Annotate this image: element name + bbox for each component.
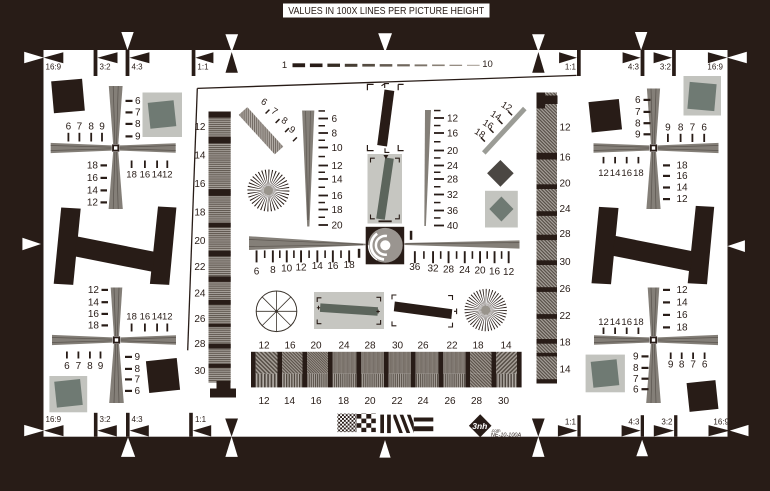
svg-text:18: 18 [126,170,137,181]
svg-text:NE-10-100A: NE-10-100A [491,432,522,438]
svg-text:14: 14 [332,175,344,186]
svg-text:12: 12 [677,285,689,296]
svg-text:16: 16 [284,341,296,352]
svg-text:14: 14 [194,151,206,162]
svg-text:3:2: 3:2 [660,63,672,72]
svg-text:4:3: 4:3 [132,63,144,72]
svg-text:9: 9 [668,360,674,371]
svg-text:8: 8 [135,364,141,375]
svg-text:4:3: 4:3 [132,415,144,424]
svg-text:10: 10 [482,59,493,70]
svg-text:18: 18 [87,161,99,172]
svg-text:28: 28 [471,396,483,407]
svg-text:VALUES IN 100X LINES PER PICTU: VALUES IN 100X LINES PER PICTURE HEIGHT [288,5,484,17]
svg-text:16: 16 [194,179,206,190]
svg-text:16: 16 [621,317,632,328]
svg-text:1:1: 1:1 [565,417,577,426]
svg-text:22: 22 [391,396,403,407]
svg-text:36: 36 [409,262,421,273]
svg-text:3:2: 3:2 [661,417,673,426]
svg-text:3:2: 3:2 [100,415,112,424]
svg-text:16: 16 [677,310,689,321]
svg-text:12: 12 [598,168,609,179]
svg-text:14: 14 [152,312,163,323]
svg-text:7: 7 [690,360,696,371]
svg-text:16:9: 16:9 [46,415,62,424]
svg-text:24: 24 [560,204,572,215]
svg-text:8: 8 [270,265,276,276]
svg-text:28: 28 [447,175,459,186]
svg-text:26: 26 [194,314,206,325]
svg-text:9: 9 [135,352,141,363]
svg-text:28: 28 [560,229,572,240]
svg-text:18: 18 [194,208,206,219]
svg-text:7: 7 [635,107,641,118]
svg-text:18: 18 [332,205,344,216]
svg-text:28: 28 [443,264,455,275]
svg-text:18: 18 [677,323,689,334]
svg-text:4:3: 4:3 [628,63,640,72]
svg-text:14: 14 [88,297,100,308]
svg-text:40: 40 [447,221,459,232]
svg-text:20: 20 [474,266,486,277]
svg-text:12: 12 [88,285,100,296]
svg-text:10: 10 [332,143,344,154]
svg-text:6: 6 [701,123,707,134]
svg-text:36: 36 [447,206,459,217]
svg-text:18: 18 [560,338,572,349]
svg-text:1: 1 [282,60,287,71]
svg-text:12: 12 [258,341,270,352]
svg-text:7: 7 [633,374,639,385]
svg-text:18: 18 [338,396,350,407]
svg-text:16: 16 [489,266,501,277]
svg-text:6: 6 [633,384,639,395]
svg-text:4:3: 4:3 [628,417,640,426]
svg-text:26: 26 [444,396,456,407]
svg-text:8: 8 [678,123,684,134]
svg-text:20: 20 [364,396,376,407]
svg-text:16: 16 [621,168,632,179]
svg-text:12: 12 [258,396,270,407]
svg-text:8: 8 [635,118,641,129]
svg-text:12: 12 [295,262,307,273]
svg-text:7: 7 [76,361,82,372]
svg-text:12: 12 [598,317,609,328]
svg-text:6: 6 [332,114,338,125]
svg-text:14: 14 [284,396,296,407]
svg-text:16: 16 [332,191,344,202]
svg-text:20: 20 [194,236,206,247]
svg-text:8: 8 [332,129,338,140]
svg-text:14: 14 [152,170,163,181]
svg-text:12: 12 [332,161,344,172]
svg-text:16:9: 16:9 [46,63,62,72]
svg-text:9: 9 [633,352,639,363]
svg-text:16: 16 [87,173,99,184]
svg-text:18: 18 [344,260,356,271]
svg-text:14: 14 [560,365,572,376]
svg-text:12: 12 [194,122,206,133]
svg-text:8: 8 [135,119,141,130]
svg-text:9: 9 [99,122,105,133]
svg-text:22: 22 [194,262,206,273]
svg-text:20: 20 [447,146,459,157]
svg-text:12: 12 [447,114,459,125]
svg-text:6: 6 [135,96,141,107]
svg-text:28: 28 [364,341,376,352]
svg-text:9: 9 [135,132,141,143]
svg-text:22: 22 [560,311,572,322]
svg-text:12: 12 [87,198,99,209]
svg-text:12: 12 [560,123,572,134]
svg-text:24: 24 [459,265,471,276]
svg-text:18: 18 [472,341,484,352]
svg-text:30: 30 [560,257,572,268]
svg-text:6: 6 [254,266,260,277]
svg-text:30: 30 [392,341,404,352]
svg-text:16:9: 16:9 [707,63,723,72]
svg-text:8: 8 [679,360,685,371]
svg-text:1:1: 1:1 [195,415,207,424]
svg-text:24: 24 [447,161,459,172]
svg-text:10: 10 [281,264,293,275]
svg-text:7: 7 [77,122,83,133]
svg-text:14: 14 [87,186,99,197]
svg-text:12: 12 [162,312,173,323]
svg-text:9: 9 [635,129,641,140]
svg-text:3nh: 3nh [472,421,487,431]
svg-text:14: 14 [610,317,621,328]
svg-text:7: 7 [135,375,141,386]
svg-text:14: 14 [312,261,324,272]
svg-text:9: 9 [665,123,671,134]
svg-text:1:1: 1:1 [197,63,209,72]
svg-text:12: 12 [677,194,689,205]
svg-text:8: 8 [87,361,93,372]
svg-text:20: 20 [560,179,572,190]
svg-text:26: 26 [560,284,572,295]
svg-text:16: 16 [560,153,572,164]
svg-text:8: 8 [88,122,94,133]
svg-text:16: 16 [140,170,151,181]
svg-text:18: 18 [633,317,644,328]
svg-text:14: 14 [677,298,689,309]
svg-text:24: 24 [417,396,429,407]
svg-text:6: 6 [702,360,708,371]
svg-text:24: 24 [194,289,206,300]
svg-text:16: 16 [447,129,459,140]
svg-text:18: 18 [677,161,689,172]
svg-text:30: 30 [194,366,206,377]
svg-text:16: 16 [677,171,689,182]
svg-text:28: 28 [194,339,206,350]
svg-text:20: 20 [310,341,322,352]
svg-text:16: 16 [140,312,151,323]
svg-text:30: 30 [498,396,510,407]
svg-text:6: 6 [135,386,141,397]
svg-text:18: 18 [633,168,644,179]
svg-text:14: 14 [610,168,621,179]
svg-text:7: 7 [135,108,141,119]
svg-text:6: 6 [635,95,641,106]
svg-text:14: 14 [500,341,512,352]
svg-text:18: 18 [126,312,137,323]
svg-text:16: 16 [327,261,339,272]
svg-text:24: 24 [338,341,350,352]
svg-text:26: 26 [417,341,429,352]
svg-text:1:1: 1:1 [565,63,577,72]
svg-text:16:9: 16:9 [713,417,729,426]
svg-text:7: 7 [690,123,696,134]
svg-text:18: 18 [88,321,100,332]
svg-text:32: 32 [447,190,459,201]
svg-text:6: 6 [64,361,70,372]
svg-text:8: 8 [633,363,639,374]
svg-text:16: 16 [88,309,100,320]
svg-text:22: 22 [446,341,458,352]
svg-text:9: 9 [98,361,104,372]
svg-text:20: 20 [332,221,344,232]
svg-text:16: 16 [310,396,322,407]
svg-text:12: 12 [503,267,515,278]
svg-text:14: 14 [677,183,689,194]
svg-text:32: 32 [427,263,439,274]
svg-text:12: 12 [162,170,173,181]
svg-text:3:2: 3:2 [100,63,112,72]
svg-text:6: 6 [66,122,72,133]
